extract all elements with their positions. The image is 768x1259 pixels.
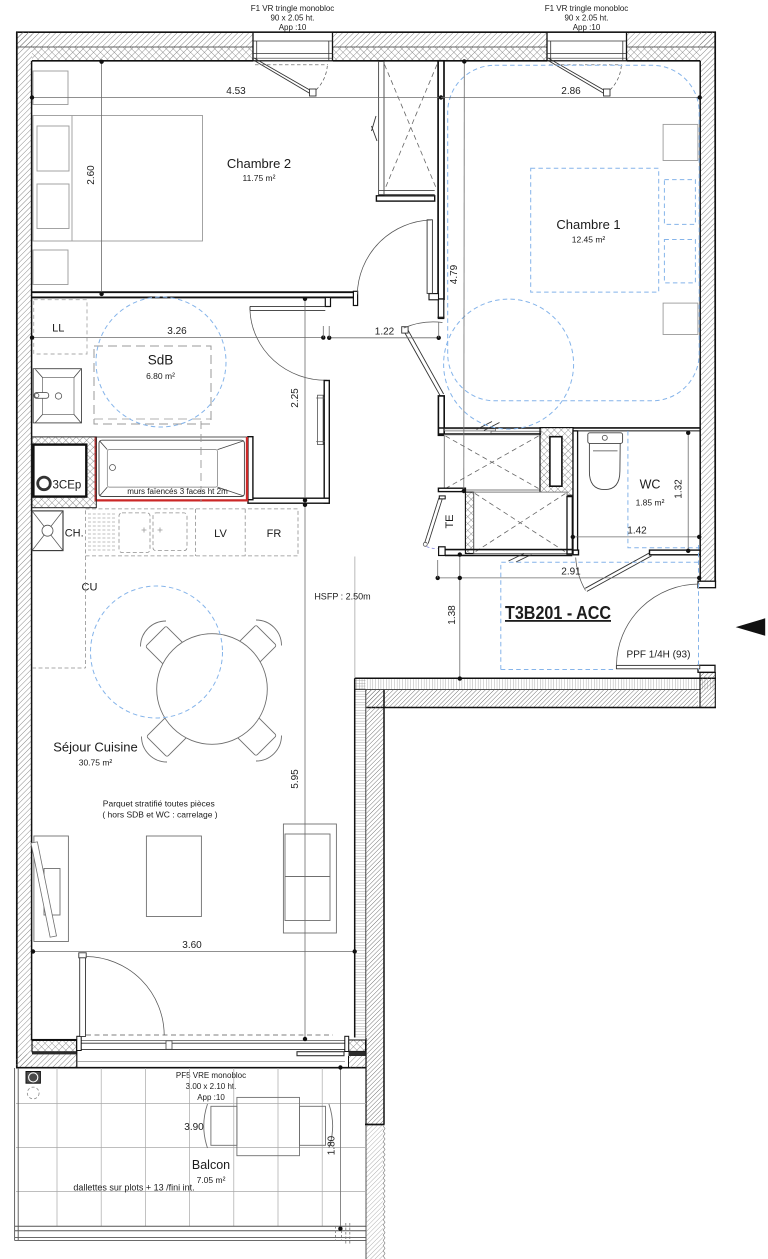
svg-text:dallettes sur plots + 13 /fini: dallettes sur plots + 13 /fini int. — [73, 1183, 194, 1193]
svg-text:CH.: CH. — [65, 528, 84, 540]
svg-text:Parquet stratifié toutes pièce: Parquet stratifié toutes pièces — [103, 799, 215, 809]
svg-text:HSFP : 2.50m: HSFP : 2.50m — [314, 592, 370, 602]
svg-text:3.60: 3.60 — [182, 940, 202, 951]
svg-text:3.26: 3.26 — [167, 326, 187, 337]
svg-text:PF5 VRE monobloc: PF5 VRE monobloc — [176, 1071, 246, 1080]
svg-text:2.86: 2.86 — [561, 86, 581, 97]
svg-text:7.05 m²: 7.05 m² — [197, 1175, 226, 1185]
svg-text:11.75 m²: 11.75 m² — [243, 173, 276, 183]
svg-text:murs faïencés 3 faces ht 2m: murs faïencés 3 faces ht 2m — [127, 487, 228, 496]
svg-text:90 x 2.05 ht.: 90 x 2.05 ht. — [564, 14, 608, 23]
svg-text:TE: TE — [444, 514, 456, 528]
svg-text:SdB: SdB — [148, 353, 174, 368]
svg-text:WC: WC — [640, 478, 661, 492]
svg-text:App :10: App :10 — [197, 1093, 225, 1102]
svg-text:2.60: 2.60 — [86, 165, 97, 185]
svg-text:1.32: 1.32 — [674, 479, 685, 499]
svg-text:4.79: 4.79 — [449, 264, 460, 284]
svg-text:App :10: App :10 — [279, 23, 307, 32]
svg-text:FR: FR — [267, 528, 282, 540]
svg-text:3CEp: 3CEp — [53, 480, 82, 492]
svg-text:5.95: 5.95 — [290, 769, 301, 789]
svg-text:2.91: 2.91 — [561, 567, 581, 578]
svg-text:1.22: 1.22 — [375, 327, 395, 338]
svg-text:6.80 m²: 6.80 m² — [146, 371, 175, 381]
svg-text:1.85 m²: 1.85 m² — [636, 498, 665, 508]
svg-text:Chambre 2: Chambre 2 — [227, 156, 291, 171]
svg-text:90 x 2.05 ht.: 90 x 2.05 ht. — [270, 14, 314, 23]
svg-text:Balcon: Balcon — [192, 1158, 230, 1172]
svg-text:3.90: 3.90 — [184, 1122, 204, 1133]
svg-text:F1 VR tringle monobloc: F1 VR tringle monobloc — [545, 4, 629, 13]
svg-text:LV: LV — [214, 528, 227, 540]
svg-text:LL: LL — [52, 323, 64, 335]
svg-text:1.38: 1.38 — [447, 605, 458, 625]
svg-text:PPF 1/4H (93): PPF 1/4H (93) — [627, 650, 691, 661]
svg-text:2.25: 2.25 — [290, 388, 301, 408]
svg-text:3.00 x 2.10 ht.: 3.00 x 2.10 ht. — [186, 1082, 237, 1091]
svg-text:Chambre 1: Chambre 1 — [556, 217, 620, 232]
svg-text:Séjour Cuisine: Séjour Cuisine — [53, 740, 138, 755]
svg-text:T3B201 - ACC: T3B201 - ACC — [505, 603, 611, 623]
svg-text:1.42: 1.42 — [627, 526, 647, 537]
svg-text:CU: CU — [82, 582, 98, 594]
svg-text:30.75 m²: 30.75 m² — [79, 758, 113, 768]
svg-text:12.45 m²: 12.45 m² — [572, 235, 606, 245]
svg-text:4.53: 4.53 — [226, 86, 246, 97]
svg-text:App :10: App :10 — [573, 23, 601, 32]
svg-text:1.80: 1.80 — [327, 1135, 338, 1155]
svg-text:( hors SDB et WC : carrelage ): ( hors SDB et WC : carrelage ) — [102, 810, 217, 820]
svg-text:F1 VR tringle monobloc: F1 VR tringle monobloc — [251, 4, 335, 13]
